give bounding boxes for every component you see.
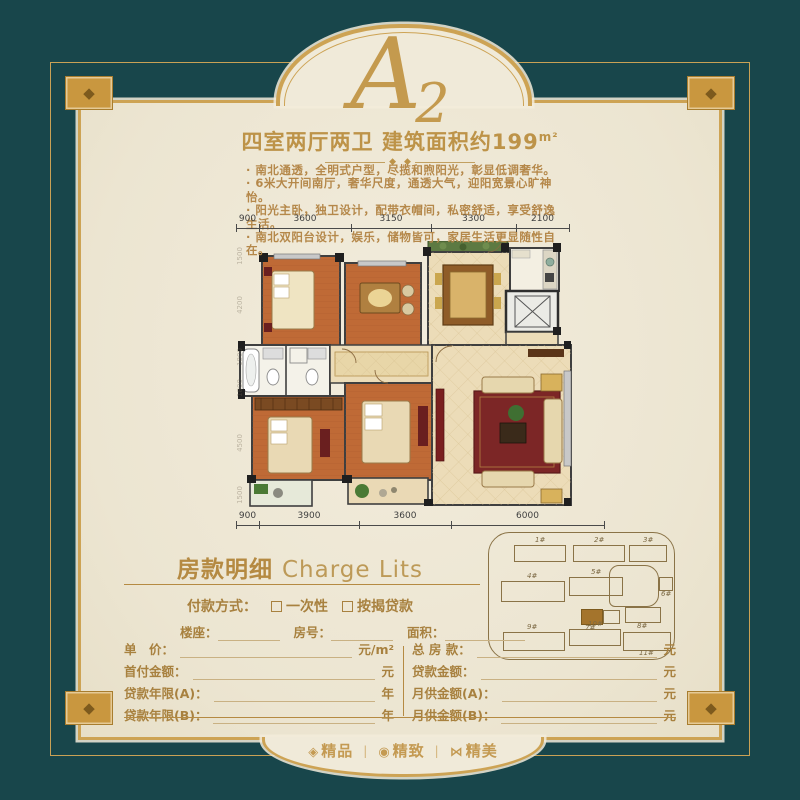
feature-bullet: · 6米大开间南厅，奢华尺度，通透大气，迎阳宽景心旷神怡。 [246,177,566,204]
bow-icon: ⋈ [450,745,464,760]
separator: | [363,744,368,758]
footer-slogans: ◈精品 | ◉精致 | ⋈精美 [308,740,497,761]
footer-item: ⋈精美 [450,740,498,761]
elevator-shaft [506,291,558,332]
blank-line [502,688,658,702]
separator: | [435,744,440,758]
footer-item: ◈精品 [308,740,353,761]
dim-label: 900 [236,214,259,229]
form-row-loan-term-a: 贷款年限(A)：年 [124,686,394,702]
feature-bullet: · 南北通透，全明式户型，尽揽和煦阳光，彰显低调奢华。 [246,164,566,177]
living-room [432,345,571,505]
dim-label: 6000 [451,511,604,526]
bedroom-1 [262,254,340,346]
plan-name: A2 [0,26,800,124]
blank-line [218,627,280,641]
dimension-chain-bottom: 900 3900 3600 6000 [236,511,604,526]
form-row-loan-amount: 贷款金额：元 [412,664,676,680]
area-unit: m² [539,130,559,144]
payment-option-mortgage: 按揭贷款 [342,596,413,616]
footer-arc: ◈精品 | ◉精致 | ⋈精美 [262,737,544,777]
hallway [330,345,432,383]
column-divider [403,646,404,716]
dim-label: 3900 [259,511,359,526]
corner-ornament-icon: ◆ [66,77,112,109]
study-room [345,261,421,346]
balcony-middle [348,478,428,504]
balcony-left [250,480,312,506]
building-field: 楼座： [180,622,280,641]
bathrooms [240,345,330,396]
dimension-chain-top: 900 3600 3150 3300 2100 [236,214,569,229]
title-rule [124,584,480,585]
payment-method-row: 付款方式： 一次性 按揭贷款 [120,596,480,616]
dim-label: 3600 [359,511,451,526]
blank-line [193,666,376,680]
payment-form: 房款明细 Charge Lits 付款方式： 一次性 按揭贷款 楼座： 房号： … [120,550,680,722]
dim-label: 2100 [516,214,569,229]
form-title-en: Charge Lits [282,557,423,583]
page-subtitle: 四室两厅两卫 建筑面积约199m² [0,126,800,156]
dim-label: 3150 [351,214,431,229]
form-row-unit-price: 单 价：元/m² [124,642,394,658]
corner-ornament-icon: ◆ [688,692,734,724]
form-row-monthly-b: 月供金额(B)：元 [412,708,676,724]
blank-line [214,688,376,702]
medallion-icon: ◉ [378,745,390,760]
plan-name-number: 2 [415,77,449,131]
footer-item: ◉精致 [378,740,424,761]
corner-ornament-icon: ◆ [66,692,112,724]
plan-name-letter: A [350,18,415,132]
building-label: 3# [643,536,653,544]
building-label: 1# [535,536,545,544]
form-row-total-price: 总 房 款：元 [412,642,676,658]
dining-room [428,252,510,346]
gem-icon: ◈ [308,745,319,760]
corner-ornament-icon: ◆ [688,77,734,109]
blank-line [477,644,658,658]
master-bedroom [252,396,345,480]
dim-label: 3300 [431,214,516,229]
payment-method-label: 付款方式： [187,596,257,616]
blank-line [481,666,658,680]
form-bottom-rule [124,717,676,718]
floor-plan [238,241,572,517]
form-row-monthly-a: 月供金额(A)：元 [412,686,676,702]
checkbox-icon [271,601,282,612]
dim-label: 3600 [259,214,351,229]
checkbox-icon [342,601,353,612]
dim-label: 900 [236,511,259,526]
real-estate-poster: ◆ ◆ ◆ ◆ A2 四室两厅两卫 建筑面积约199m² ◆◆ · 南北通透，全… [0,0,800,800]
payment-option-once: 一次性 [271,596,328,616]
form-title: 房款明细 Charge Lits [120,550,480,584]
feature-bullets: · 南北通透，全明式户型，尽揽和煦阳光，彰显低调奢华。 · 6米大开间南厅，奢华… [246,164,566,258]
blank-line [180,644,352,658]
building-label: 2# [594,536,604,544]
form-row-loan-term-b: 贷款年限(B)：年 [124,708,394,724]
feature-bullet: · 南北双阳台设计，娱乐，储物皆可，家居生活更显随性自在。 [246,231,566,258]
form-row-downpayment: 首付金额：元 [124,664,394,680]
bedroom-3 [345,383,432,480]
